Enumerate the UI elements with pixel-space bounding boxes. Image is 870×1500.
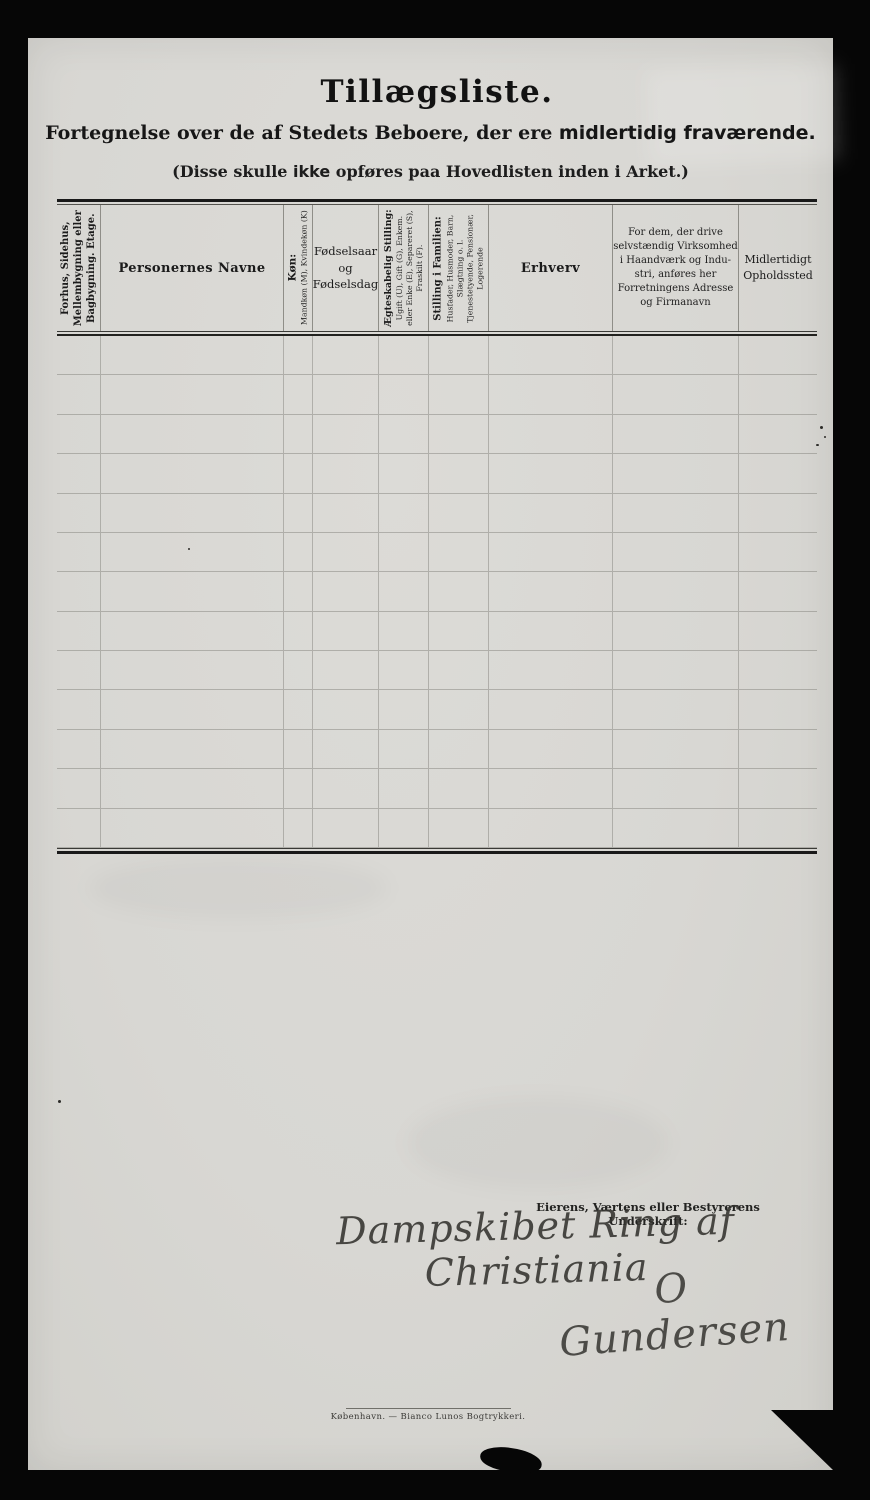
- table-cell: [378, 809, 428, 848]
- paper-speck: [188, 548, 190, 550]
- table-cell: [283, 494, 312, 533]
- table-bottom-rule-thin: [57, 848, 817, 849]
- table-cell: [428, 809, 488, 848]
- subtitle-text: Fortegnelse over de af Stedets Beboere, …: [45, 122, 559, 144]
- table-cell: [428, 572, 488, 611]
- column-header-family-position: Stilling i Familien: Husfader, Husmoder,…: [428, 205, 488, 331]
- table-cell: [312, 336, 378, 375]
- table-cell: [738, 533, 817, 572]
- note-text-prefix: (Disse skulle: [172, 162, 293, 181]
- table-cell: [378, 533, 428, 572]
- table-cell: [100, 533, 283, 572]
- table-cell: [488, 651, 612, 690]
- table-cell: [488, 730, 612, 769]
- table-cell: [57, 612, 100, 651]
- torn-edge-notch: [479, 1444, 543, 1475]
- table-cell: [738, 690, 817, 729]
- table-cell: [612, 494, 738, 533]
- table-cell: [312, 730, 378, 769]
- column-header-sex: Køn: Mandkøn (M), Kvindekøn (K): [283, 205, 312, 331]
- table-cell: [612, 730, 738, 769]
- column-header-business-address-text: For dem, der drive selvstændig Virksomhe…: [613, 226, 738, 310]
- table-cell: [100, 494, 283, 533]
- table-cell: [738, 494, 817, 533]
- table-cell: [312, 769, 378, 808]
- table-cell: [738, 336, 817, 375]
- table-cell: [283, 533, 312, 572]
- table-cell: [378, 690, 428, 729]
- torn-corner-bottom-right: [771, 1410, 833, 1470]
- table-cell: [378, 651, 428, 690]
- table-cell: [612, 454, 738, 493]
- screenshot-canvas: { "page": { "title": "Tillægsliste.", "s…: [0, 0, 870, 1500]
- table-cell: [612, 336, 738, 375]
- table-cell: [100, 572, 283, 611]
- table-cell: [283, 612, 312, 651]
- table-body: [57, 336, 817, 848]
- table-cell: [283, 572, 312, 611]
- page-note: (Disse skulle ikke opføres paa Hovedlist…: [28, 162, 833, 181]
- table-cell: [612, 809, 738, 848]
- table-cell: [488, 690, 612, 729]
- table-cell: [488, 415, 612, 454]
- table-cell: [312, 651, 378, 690]
- table-cell: [738, 809, 817, 848]
- table-cell: [100, 612, 283, 651]
- table-cell: [100, 375, 283, 414]
- table-cell: [428, 690, 488, 729]
- printer-imprint: København. — Bianco Lunos Bogtrykkeri.: [268, 1412, 588, 1422]
- table-cell: [378, 494, 428, 533]
- table-cell: [57, 336, 100, 375]
- document-page: Tillægsliste. Fortegnelse over de af Ste…: [28, 38, 833, 1470]
- table-cell: [738, 375, 817, 414]
- table-cell: [428, 336, 488, 375]
- table-cell: [312, 415, 378, 454]
- table-cell: [312, 690, 378, 729]
- table-cell: [488, 533, 612, 572]
- table-cell: [428, 769, 488, 808]
- table-cell: [428, 730, 488, 769]
- table-cell: [428, 651, 488, 690]
- table-cell: [57, 730, 100, 769]
- paper-speck: [820, 426, 823, 429]
- table-cell: [100, 336, 283, 375]
- column-header-names: Personernes Navne: [100, 205, 283, 331]
- table-cell: [488, 375, 612, 414]
- paper-speck: [58, 1100, 61, 1103]
- table-cell: [738, 730, 817, 769]
- column-header-temporary-residence: Midlertidigt Opholdssted: [738, 205, 817, 331]
- table-cell: [738, 454, 817, 493]
- column-header-marital-status: Ægteskabelig Stilling: Ugift (U), Gift (…: [378, 205, 428, 331]
- table-cell: [738, 612, 817, 651]
- table-cell: [428, 375, 488, 414]
- table-cell: [488, 809, 612, 848]
- table-cell: [283, 336, 312, 375]
- table-cell: [57, 769, 100, 808]
- table-cell: [100, 415, 283, 454]
- header-bottom-rule-thin: [57, 331, 817, 332]
- table-cell: [100, 651, 283, 690]
- table-cell: [283, 375, 312, 414]
- table-header-row: Forhus, Sidehus, Mellembygning eller Bag…: [57, 205, 817, 331]
- table-cell: [488, 769, 612, 808]
- table-cell: [378, 454, 428, 493]
- table-cell: [100, 690, 283, 729]
- table-cell: [100, 809, 283, 848]
- table-cell: [283, 730, 312, 769]
- note-emphasis: ikke: [293, 162, 330, 181]
- table-cell: [57, 690, 100, 729]
- table-cell: [57, 533, 100, 572]
- table-cell: [612, 415, 738, 454]
- column-header-sex-text: Køn: Mandkøn (M), Kvindekøn (K): [286, 206, 309, 330]
- page-title: Tillægsliste.: [57, 74, 817, 110]
- table-cell: [283, 454, 312, 493]
- table-cell: [100, 769, 283, 808]
- table-cell: [312, 494, 378, 533]
- table-cell: [283, 769, 312, 808]
- census-table: Forhus, Sidehus, Mellembygning eller Bag…: [57, 199, 817, 855]
- table-cell: [312, 375, 378, 414]
- table-cell: [612, 651, 738, 690]
- table-cell: [612, 612, 738, 651]
- paper-speck: [824, 436, 826, 438]
- table-cell: [312, 612, 378, 651]
- table-cell: [57, 415, 100, 454]
- table-top-rule-thick: [57, 199, 817, 202]
- table-cell: [378, 375, 428, 414]
- table-cell: [57, 572, 100, 611]
- table-cell: [57, 809, 100, 848]
- column-header-temporary-residence-text: Midlertidigt Opholdssted: [743, 252, 813, 284]
- table-cell: [57, 375, 100, 414]
- table-cell: [100, 730, 283, 769]
- table-cell: [428, 612, 488, 651]
- column-header-birth-text: Fødselsaar og Fødselsdag: [313, 243, 379, 293]
- column-header-building-text: Forhus, Sidehus, Mellembygning eller Bag…: [59, 206, 97, 330]
- table-cell: [612, 572, 738, 611]
- table-cell: [428, 454, 488, 493]
- table-cell: [378, 336, 428, 375]
- table-cell: [378, 730, 428, 769]
- column-header-marital-status-text: Ægteskabelig Stilling: Ugift (U), Gift (…: [382, 206, 424, 330]
- table-cell: [283, 809, 312, 848]
- table-cell: [378, 612, 428, 651]
- subtitle-emphasis: midlertidig fraværende.: [559, 122, 816, 144]
- table-bottom-rule-thick: [57, 851, 817, 854]
- table-cell: [738, 415, 817, 454]
- column-header-occupation: Erhverv: [488, 205, 612, 331]
- paper-smudge: [88, 858, 388, 918]
- handwritten-signature-name: O Gundersen: [535, 1257, 811, 1368]
- table-cell: [612, 769, 738, 808]
- table-cell: [612, 533, 738, 572]
- table-cell: [57, 651, 100, 690]
- table-cell: [428, 494, 488, 533]
- column-header-business-address: For dem, der drive selvstændig Virksomhe…: [612, 205, 738, 331]
- table-cell: [738, 572, 817, 611]
- page-subtitle: Fortegnelse over de af Stedets Beboere, …: [28, 122, 833, 144]
- table-cell: [738, 651, 817, 690]
- column-header-family-position-text: Stilling i Familien: Husfader, Husmoder,…: [432, 206, 485, 330]
- table-cell: [428, 415, 488, 454]
- table-cell: [283, 415, 312, 454]
- table-cell: [312, 572, 378, 611]
- table-cell: [57, 494, 100, 533]
- column-header-birth: Fødselsaar og Fødselsdag: [312, 205, 378, 331]
- table-cell: [488, 336, 612, 375]
- note-text-suffix: opføres paa Hovedlisten inden i Arket.): [330, 162, 689, 181]
- table-cell: [57, 454, 100, 493]
- table-cell: [312, 809, 378, 848]
- table-cell: [428, 533, 488, 572]
- table-cell: [738, 769, 817, 808]
- table-cell: [488, 454, 612, 493]
- paper-speck: [816, 444, 819, 446]
- table-cell: [283, 651, 312, 690]
- table-cell: [488, 572, 612, 611]
- table-cell: [378, 572, 428, 611]
- paper-smudge: [408, 1098, 668, 1188]
- table-cell: [378, 415, 428, 454]
- table-cell: [488, 612, 612, 651]
- table-cell: [312, 454, 378, 493]
- table-cell: [100, 454, 283, 493]
- table-cell: [612, 375, 738, 414]
- table-cell: [488, 494, 612, 533]
- table-cell: [283, 690, 312, 729]
- table-cell: [612, 690, 738, 729]
- table-cell: [378, 769, 428, 808]
- imprint-rule: [346, 1408, 511, 1409]
- column-header-building: Forhus, Sidehus, Mellembygning eller Bag…: [57, 205, 100, 331]
- table-cell: [312, 533, 378, 572]
